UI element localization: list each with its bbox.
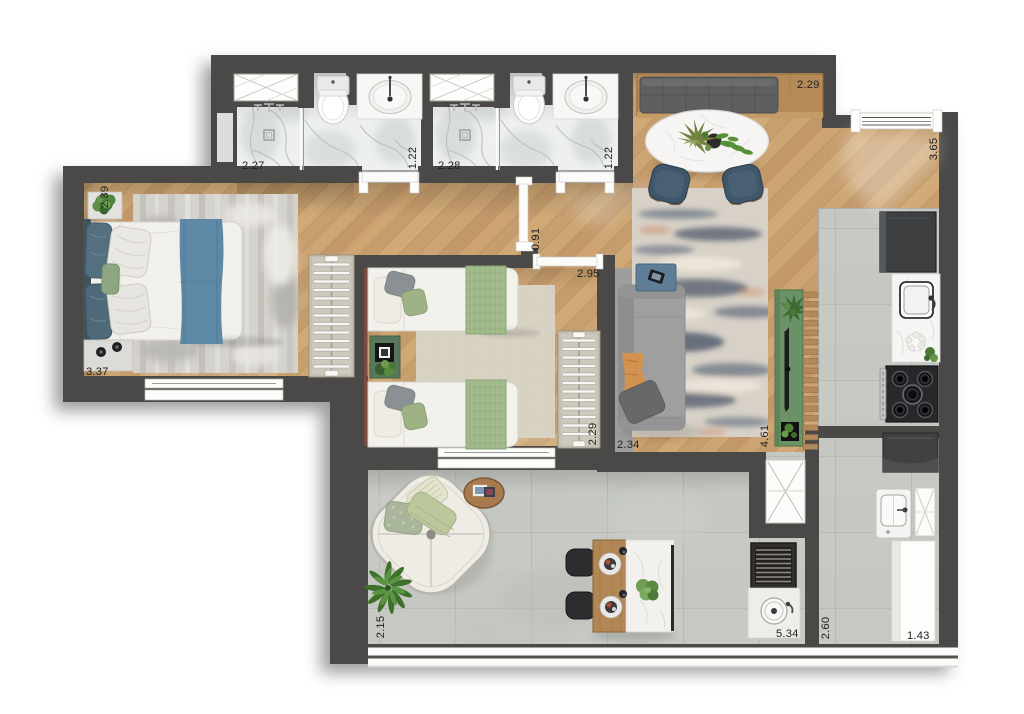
svg-text:2.39: 2.39 <box>99 186 111 209</box>
svg-text:5.34: 5.34 <box>776 628 799 640</box>
svg-text:0.91: 0.91 <box>530 228 542 251</box>
svg-text:2.34: 2.34 <box>617 439 640 451</box>
svg-text:2.60: 2.60 <box>820 617 832 640</box>
svg-text:3.65: 3.65 <box>928 138 940 161</box>
svg-text:2.28: 2.28 <box>438 160 461 172</box>
svg-text:2.29: 2.29 <box>797 79 820 91</box>
svg-text:2.95: 2.95 <box>577 268 600 280</box>
svg-text:1.43: 1.43 <box>907 630 930 642</box>
svg-text:3.37: 3.37 <box>86 366 109 378</box>
svg-text:4.61: 4.61 <box>759 425 771 448</box>
svg-text:1.22: 1.22 <box>603 147 615 170</box>
svg-text:2.29: 2.29 <box>587 423 599 446</box>
svg-text:2.15: 2.15 <box>375 616 387 639</box>
svg-text:1.22: 1.22 <box>407 147 419 170</box>
svg-text:2.27: 2.27 <box>242 160 265 172</box>
